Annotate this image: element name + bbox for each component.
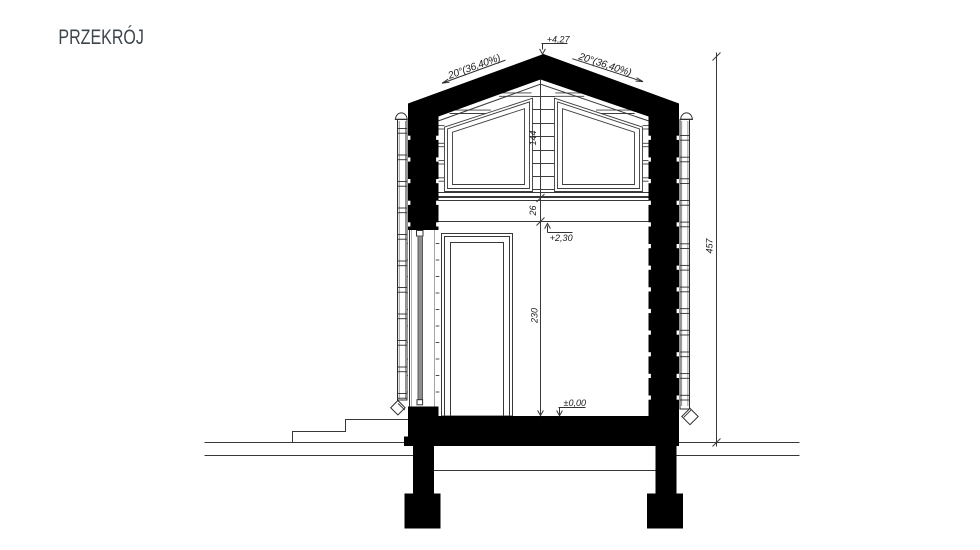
svg-text:+2,30: +2,30 — [550, 233, 573, 243]
svg-text:144: 144 — [528, 130, 538, 145]
svg-text:±0,00: ±0,00 — [564, 398, 586, 408]
svg-text:230: 230 — [530, 308, 540, 324]
svg-text:PRZEKRÓJ: PRZEKRÓJ — [58, 26, 143, 49]
svg-text:+4,27: +4,27 — [547, 35, 571, 45]
svg-text:26: 26 — [528, 205, 538, 216]
svg-text:457: 457 — [705, 238, 715, 254]
